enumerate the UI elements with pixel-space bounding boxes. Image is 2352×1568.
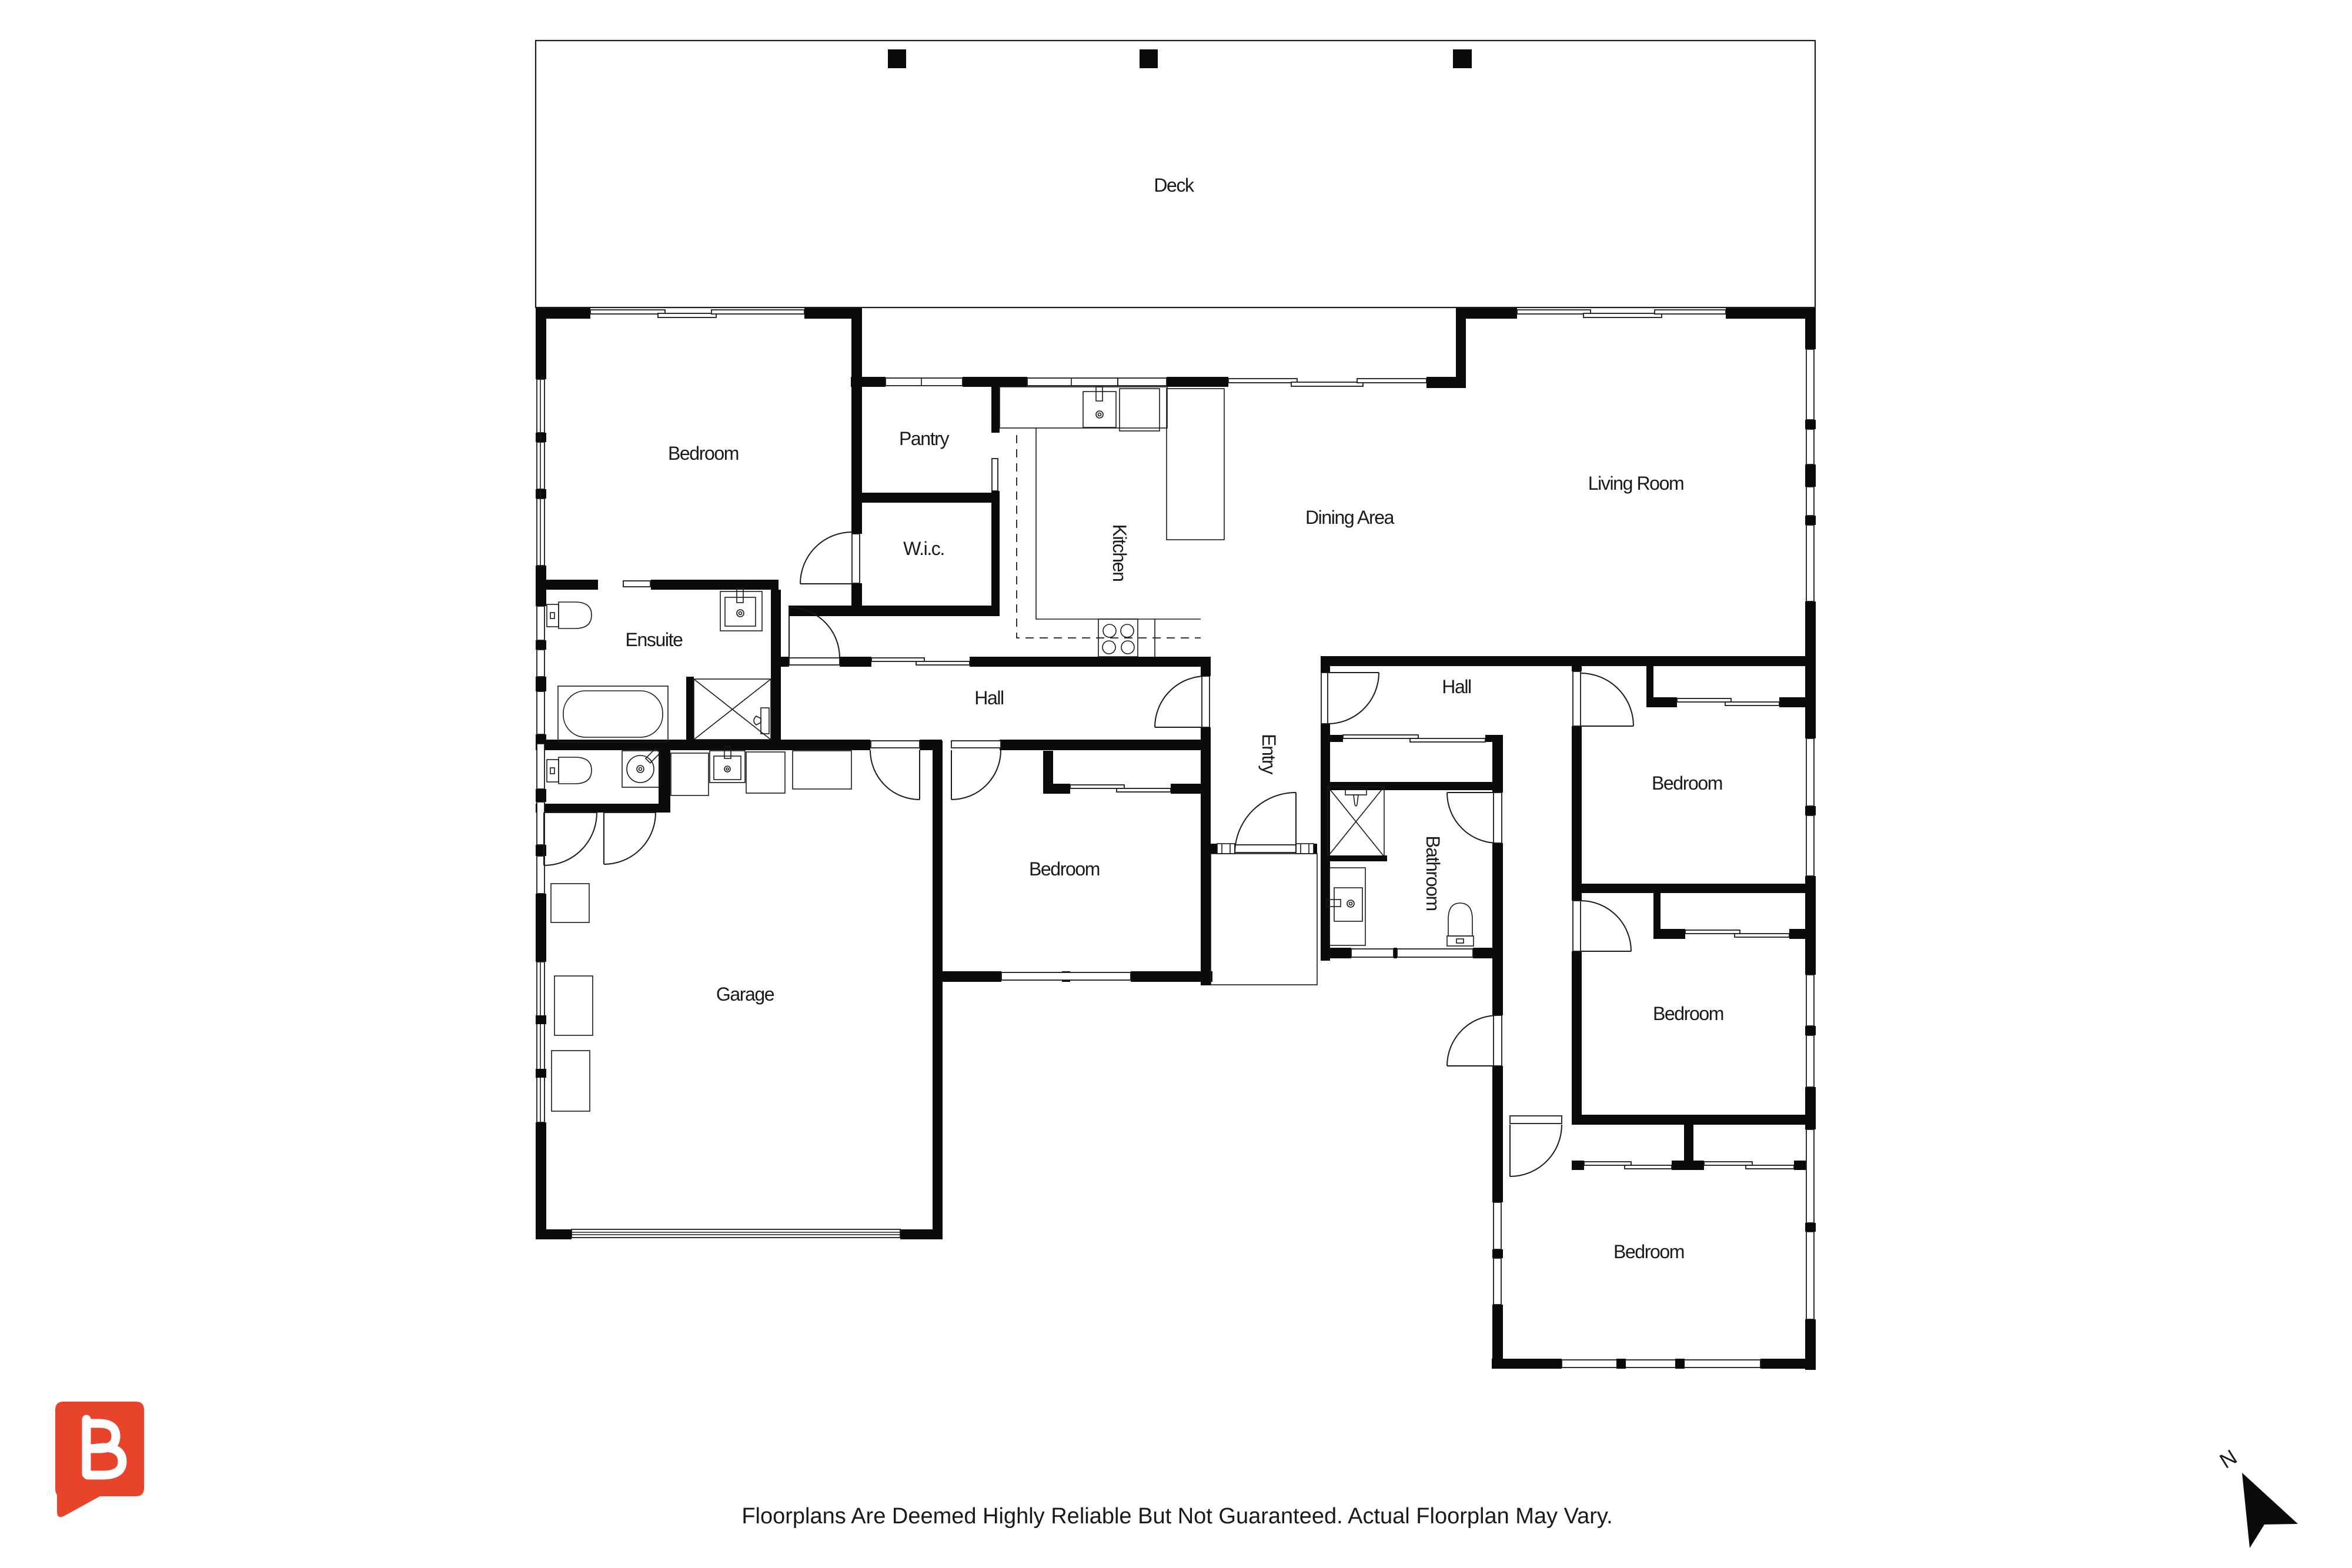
svg-text:Bedroom: Bedroom: [1653, 1003, 1723, 1024]
svg-text:Garage: Garage: [716, 984, 774, 1005]
svg-text:Bedroom: Bedroom: [1652, 773, 1722, 794]
svg-text:Hall: Hall: [974, 687, 1004, 708]
svg-text:Hall: Hall: [1442, 676, 1471, 697]
svg-text:Deck: Deck: [1154, 175, 1195, 196]
svg-text:Ensuite: Ensuite: [626, 629, 683, 650]
svg-text:Bathroom: Bathroom: [1422, 835, 1444, 911]
svg-text:W.i.c.: W.i.c.: [903, 538, 944, 559]
svg-text:Entry: Entry: [1258, 734, 1279, 774]
svg-text:Kitchen: Kitchen: [1109, 524, 1130, 581]
svg-text:Dining Area: Dining Area: [1305, 507, 1395, 528]
svg-text:Floorplans Are Deemed Highly R: Floorplans Are Deemed Highly Reliable Bu…: [741, 1504, 1612, 1529]
svg-text:Bedroom: Bedroom: [668, 443, 739, 464]
svg-text:Bedroom: Bedroom: [1613, 1241, 1684, 1262]
svg-text:Bedroom: Bedroom: [1029, 858, 1100, 880]
svg-text:Pantry: Pantry: [899, 428, 949, 449]
svg-text:Living Room: Living Room: [1588, 473, 1683, 494]
